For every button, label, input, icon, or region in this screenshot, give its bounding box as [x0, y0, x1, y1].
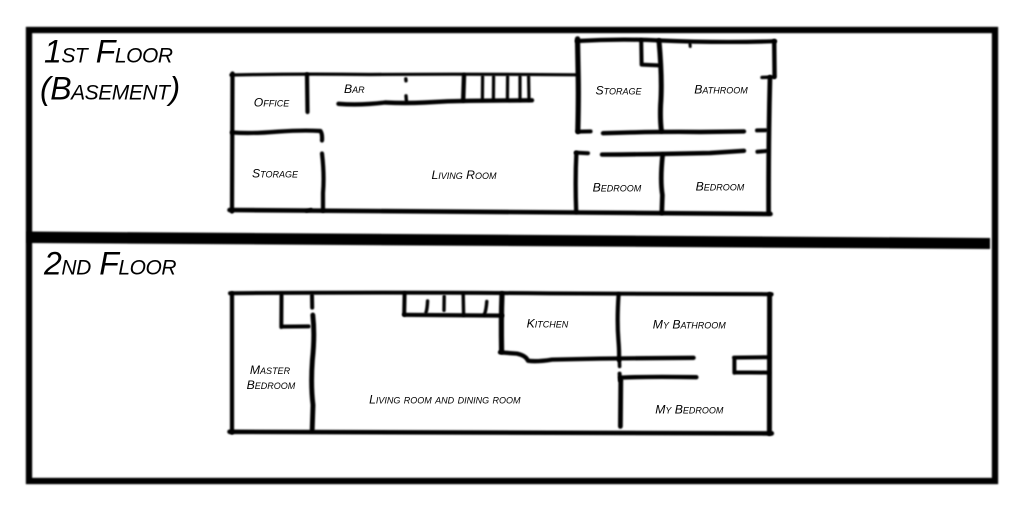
svg-text:Storage: Storage — [252, 167, 299, 181]
svg-text:Office: Office — [254, 96, 290, 110]
svg-text:1ST FLOOR: 1ST FLOOR — [44, 34, 173, 70]
svg-text:My Bathroom: My Bathroom — [653, 318, 727, 332]
svg-text:Storage: Storage — [596, 84, 643, 98]
svg-text:Bedroom: Bedroom — [593, 181, 642, 195]
svg-text:Bedroom: Bedroom — [696, 180, 745, 194]
svg-text:(BASEMENT): (BASEMENT) — [40, 71, 180, 107]
svg-text:My Bedroom: My Bedroom — [655, 403, 724, 417]
svg-text:Bathroom: Bathroom — [694, 83, 748, 97]
svg-text:Living Room: Living Room — [432, 168, 497, 182]
svg-text:2ND FLOOR: 2ND FLOOR — [43, 246, 176, 282]
svg-text:Kitchen: Kitchen — [527, 317, 569, 331]
svg-text:Master: Master — [250, 363, 291, 377]
svg-text:Living room and dining room: Living room and dining room — [369, 393, 521, 407]
svg-text:Bar: Bar — [344, 82, 365, 96]
svg-text:Bedroom: Bedroom — [247, 378, 296, 392]
